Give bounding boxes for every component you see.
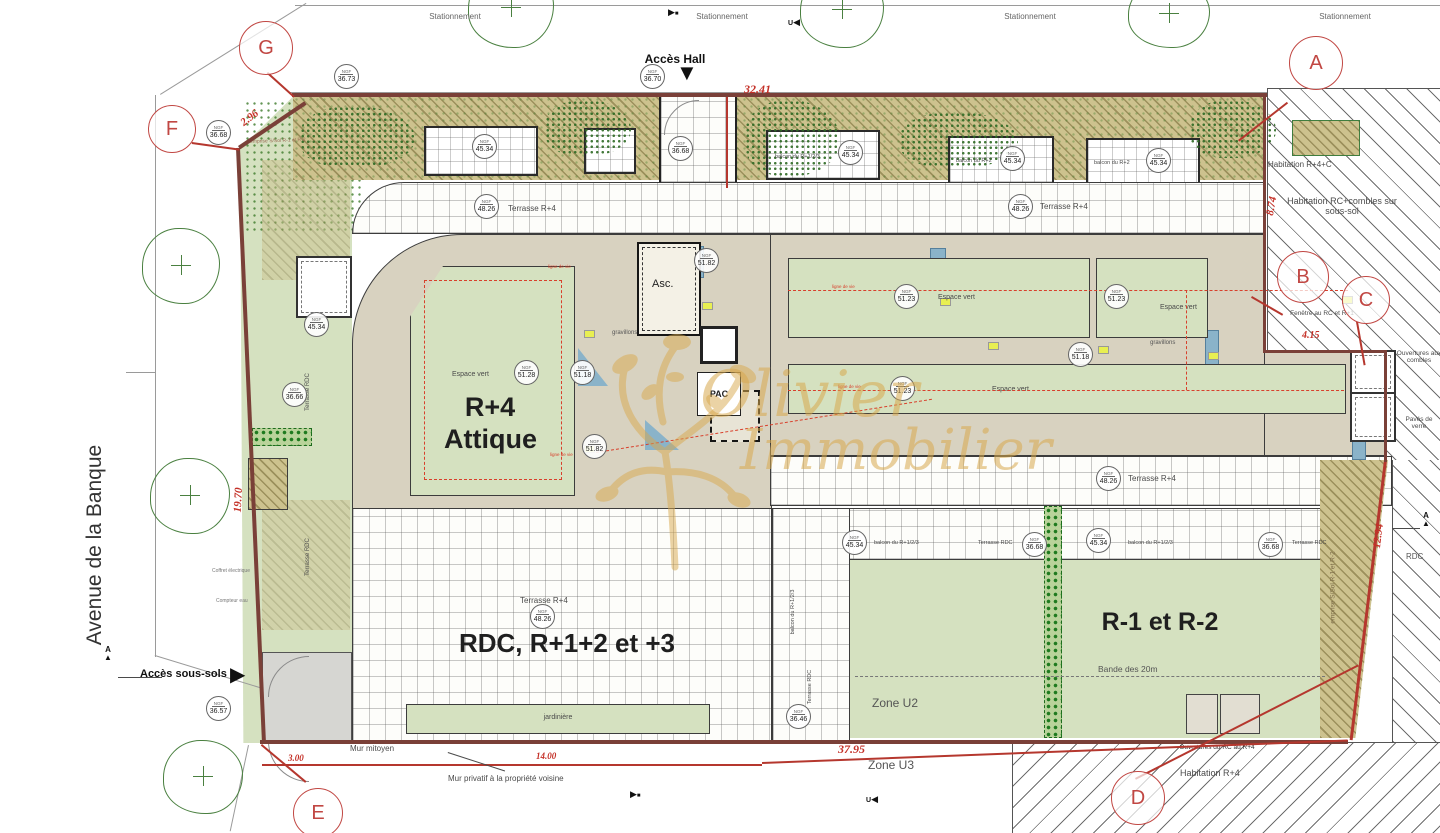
terrace-r4-label: Terrasse R+4 (508, 204, 556, 213)
shrub-cluster (545, 100, 631, 156)
wall-label: Mur privatif à la propriété voisine (448, 774, 564, 783)
lifeline-dashed (1186, 290, 1187, 390)
terrace-r4-label: Terrasse R+4 (1040, 202, 1088, 211)
paves-verre-label: Pavés de verre (1398, 416, 1440, 430)
elevator-label: Asc. (652, 278, 673, 290)
openings-combles-label: Ouvertures aux combles (1396, 350, 1440, 364)
ref-point-f: F (148, 105, 196, 153)
elevation-marker: NGF51.23 (1104, 284, 1129, 309)
wall-label: Mur mitoyen (350, 744, 394, 753)
elevation-marker: NGF36.68 (1258, 532, 1283, 557)
elevation-marker: NGF48.26 (1008, 194, 1033, 219)
parking-label: Stationnement (990, 12, 1070, 21)
bande-20m-line (855, 676, 1325, 677)
ref-point-b: B (1277, 251, 1329, 303)
attic-title-line1: R+4 (430, 392, 550, 423)
bande-20m-label: Bande des 20m (1098, 664, 1158, 674)
terrace-rdc-label: Terrasse RDC (305, 507, 311, 607)
green-space-label: Espace vert (452, 371, 489, 378)
elevation-marker: NGF45.34 (1086, 528, 1111, 553)
elevation-marker: NGF36.70 (640, 64, 665, 89)
dimension: 3.00 (288, 753, 304, 763)
green-space-label: Espace vert (1160, 304, 1197, 311)
elevation-marker: NGF45.34 (1000, 146, 1025, 171)
balcony-label: balcon du R+2 (956, 158, 992, 164)
elevation-marker: NGF45.34 (838, 140, 863, 165)
balcony-label: balcon du R+1/2/3 (775, 154, 820, 160)
survey-leader (1392, 528, 1420, 529)
site-plan: Stationnement Stationnement Stationnemen… (0, 0, 1440, 833)
elevation-marker: NGF36.57 (206, 696, 231, 721)
elevation-marker: NGF48.26 (1096, 466, 1121, 491)
site-boundary-step (1263, 350, 1387, 353)
terrace-r4-label: Terrasse R+4 (1128, 474, 1176, 483)
site-boundary-south (260, 740, 1348, 744)
elevation-marker: NGF36.68 (668, 136, 693, 161)
west-window-box (296, 256, 352, 318)
ref-point-c: C (1342, 276, 1390, 324)
ref-point-g: G (239, 21, 293, 75)
vent-box (1186, 694, 1218, 734)
shrub-cluster (745, 100, 840, 176)
boundary-left (155, 95, 156, 657)
access-basement-arrow-icon: ▶ (230, 662, 245, 687)
street-name: Avenue de la Banque (83, 380, 107, 710)
balcony-label-vertical: balcon du R+1/2/3 (790, 562, 796, 662)
elevation-marker: NGF45.34 (842, 530, 867, 555)
ref-point-a: A (1289, 36, 1343, 90)
neighbour-label: Habitation R+4+C (1268, 160, 1332, 169)
balcony-label: balcon du R+2 (1094, 160, 1130, 166)
neighbour-parcel-south (1012, 742, 1440, 833)
lifeline-label: ligne de vie (548, 264, 571, 269)
dim-line-bottom (262, 764, 762, 766)
site-boundary-east-upper (1263, 95, 1266, 353)
ref-point-d: D (1111, 771, 1165, 825)
elevation-marker: NGF36.68 (206, 120, 231, 145)
planter-label: jardinière (406, 714, 710, 721)
survey-flag-icon: U◀ (866, 794, 878, 805)
vent-box (1220, 694, 1260, 734)
terrace-rdc-label: Terrasse RDC (1292, 540, 1327, 546)
tree-icon (150, 458, 230, 534)
neighbour-parcel-southeast (1392, 460, 1440, 742)
watermark-name-2: Immobilier (740, 418, 1052, 483)
neighbour-window-box (1350, 392, 1396, 442)
elevation-marker: NGF51.82 (694, 248, 719, 273)
parcel-tick-left (126, 372, 156, 373)
emprise-label: emprise S/Sol R-1 et R-2 (1330, 533, 1337, 643)
survey-flag-icon: ▶■ (668, 7, 679, 18)
parking-label: Stationnement (682, 12, 762, 21)
parking-label: Stationnement (1305, 12, 1385, 21)
utility-label: Coffret électrique (212, 568, 250, 574)
parking-label: Stationnement (415, 12, 495, 21)
hedge-strip (252, 428, 312, 446)
elevation-marker: NGF45.34 (304, 312, 329, 337)
rdc-title: RDC, R+1+2 et +3 (372, 628, 762, 659)
hall-dim-line (726, 96, 728, 188)
ref-leader (267, 72, 295, 97)
elevation-marker: NGF36.46 (786, 704, 811, 729)
neighbour-window-box (1350, 350, 1396, 394)
elevation-marker: NGF45.34 (472, 134, 497, 159)
terrace-rdc-label: Terrasse RDC (978, 540, 1013, 546)
elevation-marker: NGF51.18 (1068, 342, 1093, 367)
tag-marker-icon (988, 342, 999, 350)
site-boundary-top (292, 93, 1267, 97)
survey-point-icon: A▲ (1418, 512, 1434, 528)
elevation-marker: NGF48.26 (474, 194, 499, 219)
utility-label: Compteur eau (216, 598, 248, 604)
zone-u3-label: Zone U3 (868, 758, 914, 772)
access-basement-label: Accès sous-sols (140, 668, 227, 680)
access-hall-label: Accès Hall (630, 52, 720, 66)
zone-u2-label: Zone U2 (872, 696, 918, 710)
tree-icon (800, 0, 884, 48)
lifeline-label: ligne de vie (832, 284, 855, 289)
access-hall-arrow-icon: ▼ (676, 60, 698, 86)
neighbour-label: Habitation R+4 (1180, 768, 1240, 778)
attic-title-line2: Attique (418, 424, 563, 455)
balcony-label: balcon du R+1/2/3 (1128, 540, 1173, 546)
balcony-label: balcon du R+1/2/3 (874, 540, 919, 546)
elevation-marker: NGF36.73 (334, 64, 359, 89)
green-space-label: Espace vert (938, 294, 975, 301)
neighbour-annex (1292, 120, 1360, 156)
dimension: 19.70 (232, 487, 245, 512)
dimension: 32.41 (744, 82, 771, 97)
tree-icon (142, 228, 220, 304)
tag-marker-icon (702, 302, 713, 310)
tree-icon (163, 740, 243, 814)
elevation-marker: NGF36.66 (282, 382, 307, 407)
survey-flag-icon: ▶■ (630, 789, 641, 800)
elevation-marker: NGF51.28 (514, 360, 539, 385)
elevation-marker: NGF45.34 (1146, 148, 1171, 173)
neighbour-label: Habitation RC+combles sur sous-sol (1284, 196, 1400, 216)
tree-icon (1128, 0, 1210, 48)
dimension: 37.95 (838, 742, 865, 757)
survey-flag-icon: U◀ (788, 17, 800, 28)
tag-marker-icon (1208, 352, 1219, 360)
elevation-marker: NGF51.23 (894, 284, 919, 309)
shrub-cluster (300, 106, 415, 168)
dimension: 12.94 (1371, 523, 1386, 549)
dimension: 14.00 (536, 751, 556, 761)
wall-leader (448, 752, 505, 771)
rdc-note: RDC (1406, 552, 1423, 561)
site-boundary-east-mid (1384, 352, 1387, 462)
dimension: 4.15 (1302, 330, 1320, 341)
elevation-marker: NGF36.68 (1022, 532, 1047, 557)
tree-icon (468, 0, 554, 48)
tag-marker-icon (1098, 346, 1109, 354)
elevation-marker: NGF48.26 (530, 604, 555, 629)
gravel-label: gravillons (1150, 340, 1175, 346)
r1r2-title: R-1 et R-2 (1040, 608, 1280, 637)
ref-point-e: E (293, 788, 343, 833)
